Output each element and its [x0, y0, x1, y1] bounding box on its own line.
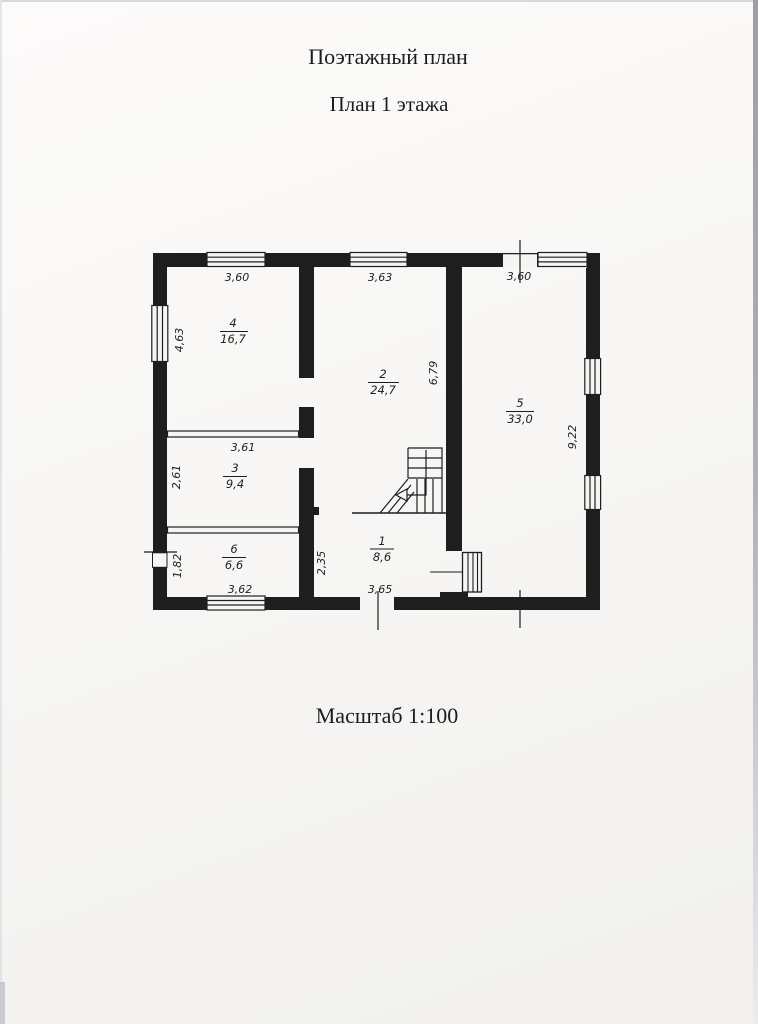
room6-number: 6	[230, 542, 237, 556]
scanned-floor-plan-page: Поэтажный план План 1 этажа Масштаб 1:10…	[0, 0, 758, 1024]
room2-area: 24,7	[370, 383, 396, 397]
stair-treads	[408, 458, 442, 478]
wall-door-nub	[314, 507, 319, 515]
room-label-3: 3 9,4	[223, 461, 247, 491]
room2-number: 2	[379, 367, 386, 381]
dim-left-room4: 4,63	[173, 328, 186, 353]
flue-block	[430, 553, 482, 593]
stair-winder-verticals	[417, 479, 433, 513]
wall-room4-room3	[168, 431, 299, 437]
wall-room3-room1	[299, 468, 314, 597]
room-label-4: 4 16,7	[220, 316, 248, 346]
wall-room1-room5-foot	[440, 592, 468, 598]
room4-number: 4	[229, 316, 236, 330]
dim-top-room5: 3,60	[507, 270, 532, 283]
dim-top-room4: 3,60	[225, 271, 250, 284]
dim-left-room3: 2,61	[170, 465, 183, 490]
wall-room4-room2-stub	[299, 407, 314, 438]
wall-room2-room5	[446, 267, 462, 551]
dim-right-room5: 9,22	[566, 425, 579, 450]
dim-left-room6: 1,82	[171, 554, 184, 579]
room6-area: 6,6	[225, 558, 243, 572]
room-label-6: 6 6,6	[222, 542, 246, 572]
dim-room3-top: 3,61	[231, 441, 256, 454]
dim-room2-right: 6,79	[427, 361, 440, 386]
dim-room1-left: 2,35	[315, 551, 328, 576]
interior-walls	[299, 267, 468, 598]
staircase	[352, 448, 446, 513]
room1-number: 1	[378, 534, 385, 548]
room5-number: 5	[516, 396, 523, 410]
room-label-2: 2 24,7	[368, 367, 399, 397]
wall-room3-room6	[168, 527, 299, 533]
room3-number: 3	[231, 461, 238, 475]
room-label-5: 5 33,0	[506, 396, 534, 426]
dim-bottom-room1: 3,65	[368, 583, 393, 596]
page-title: Поэтажный план	[308, 44, 468, 69]
floor-plan-drawing: Поэтажный план План 1 этажа Масштаб 1:10…	[0, 0, 758, 1024]
room5-area: 33,0	[507, 412, 533, 426]
dim-top-room2: 3,63	[368, 271, 393, 284]
page-subtitle: План 1 этажа	[330, 92, 449, 116]
room4-area: 16,7	[220, 332, 246, 346]
room1-area: 8,6	[373, 550, 391, 564]
scale-label: Масштаб 1:100	[316, 703, 458, 728]
wall-room4-room2-upper	[299, 267, 314, 378]
room3-area: 9,4	[226, 477, 244, 491]
room-label-1: 1 8,6	[370, 534, 394, 564]
dim-bottom-room6: 3,62	[228, 583, 253, 596]
